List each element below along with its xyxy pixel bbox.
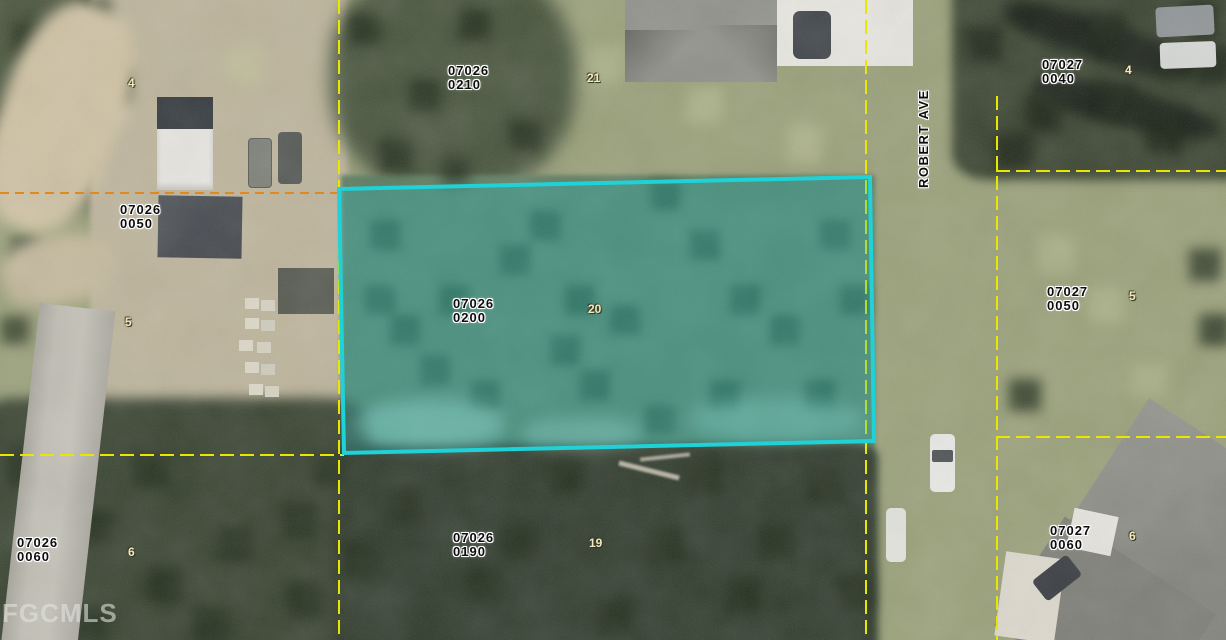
street-label-robert-ave: ROBERT AVE: [916, 89, 931, 188]
parcel-id-line1: 07026: [17, 536, 58, 550]
parcel-id-line2: 0190: [453, 545, 494, 559]
parcel-id-line1: 07026: [453, 531, 494, 545]
parcel-label: 07027 0060: [1050, 524, 1091, 552]
lot-number: 21: [587, 71, 600, 85]
lot-number: 19: [589, 536, 602, 550]
parcel-id-line1: 07027: [1050, 524, 1091, 538]
lot-number: 4: [128, 76, 135, 90]
parcel-label: 07027 0040: [1042, 58, 1083, 86]
lot-number: 4: [1125, 63, 1132, 77]
parcel-id-line2: 0210: [448, 78, 489, 92]
parcel-label: 07026 0060: [17, 536, 58, 564]
lot-number: 6: [1129, 529, 1136, 543]
parcel-label: 07026 0190: [453, 531, 494, 559]
highlighted-parcel-boundary: [339, 177, 874, 453]
parcel-id-line2: 0040: [1042, 72, 1083, 86]
lot-number: 6: [128, 545, 135, 559]
parcel-id-line1: 07027: [1042, 58, 1083, 72]
parcel-id-line2: 0060: [17, 550, 58, 564]
parcel-id-line1: 07026: [453, 297, 494, 311]
parcel-label-subject: 07026 0200: [453, 297, 494, 325]
parcel-id-line1: 07026: [448, 64, 489, 78]
lot-number: 5: [1129, 289, 1136, 303]
parcel-id-line2: 0050: [1047, 299, 1088, 313]
lot-number-subject: 20: [588, 302, 601, 316]
parcel-id-line1: 07026: [120, 203, 161, 217]
parcel-label: 07026 0050: [120, 203, 161, 231]
parcel-id-line2: 0050: [120, 217, 161, 231]
parcel-map: 07026 0210 07027 0040 07026 0050 07026 0…: [0, 0, 1226, 640]
highlighted-parcel-layer: [0, 0, 1226, 640]
watermark-fgcmls: FGCMLS: [2, 598, 118, 629]
parcel-id-line1: 07027: [1047, 285, 1088, 299]
parcel-id-line2: 0200: [453, 311, 494, 325]
parcel-label: 07026 0210: [448, 64, 489, 92]
lot-number: 5: [125, 315, 132, 329]
parcel-label: 07027 0050: [1047, 285, 1088, 313]
parcel-id-line2: 0060: [1050, 538, 1091, 552]
